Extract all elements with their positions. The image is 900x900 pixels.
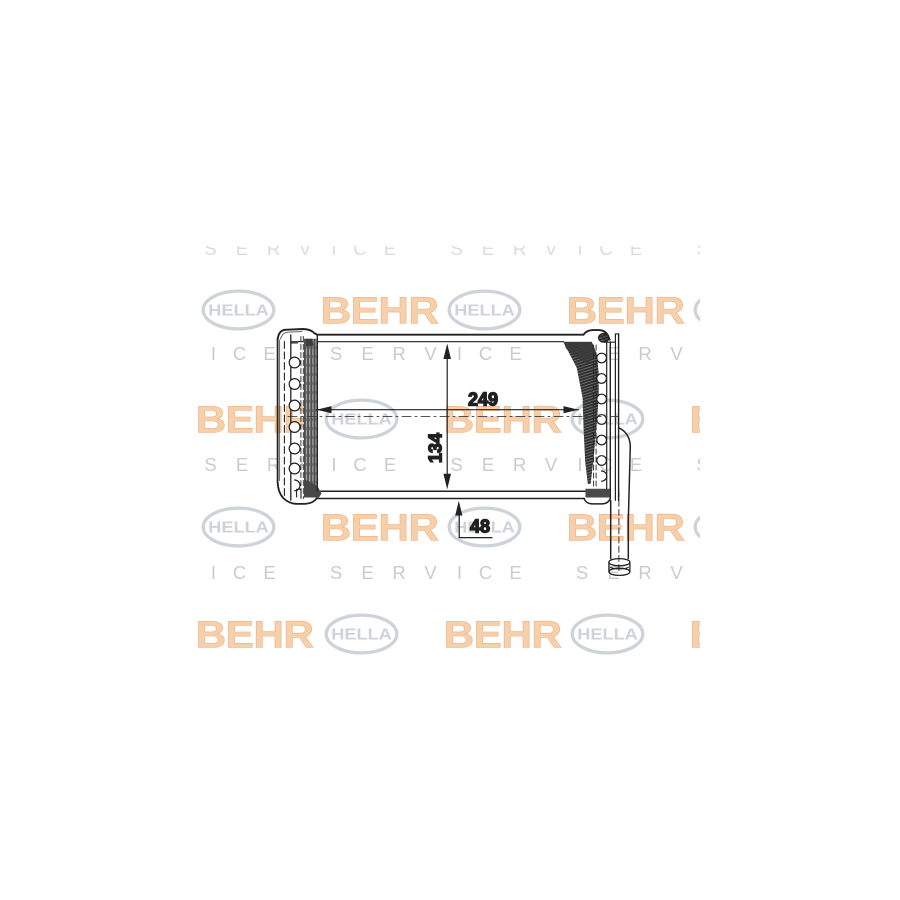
svg-text:I: I xyxy=(211,343,216,364)
svg-text:S: S xyxy=(450,454,462,475)
svg-text:E: E xyxy=(361,562,373,583)
svg-text:R: R xyxy=(513,454,526,475)
svg-text:R: R xyxy=(638,343,651,364)
svg-text:S: S xyxy=(576,562,588,583)
svg-text:R: R xyxy=(392,343,405,364)
svg-text:E: E xyxy=(509,562,521,583)
svg-text:R: R xyxy=(392,562,405,583)
svg-text:C: C xyxy=(479,562,492,583)
svg-text:I: I xyxy=(577,454,582,475)
svg-text:C: C xyxy=(479,343,492,364)
svg-text:V: V xyxy=(670,562,683,583)
svg-text:R: R xyxy=(638,562,651,583)
svg-text:I: I xyxy=(211,562,216,583)
svg-text:134: 134 xyxy=(426,433,446,463)
svg-text:S: S xyxy=(330,562,342,583)
svg-text:C: C xyxy=(233,343,246,364)
svg-text:C: C xyxy=(353,454,366,475)
svg-text:I: I xyxy=(331,454,336,475)
svg-text:E: E xyxy=(361,343,373,364)
svg-text:E: E xyxy=(509,343,521,364)
svg-text:E: E xyxy=(630,454,642,475)
svg-text:V: V xyxy=(545,454,558,475)
svg-text:E: E xyxy=(482,454,494,475)
svg-text:E: E xyxy=(384,454,396,475)
svg-text:C: C xyxy=(233,562,246,583)
svg-text:E: E xyxy=(236,454,248,475)
svg-text:E: E xyxy=(263,562,275,583)
svg-text:E: E xyxy=(263,343,275,364)
svg-text:V: V xyxy=(424,562,437,583)
svg-text:E: E xyxy=(607,343,619,364)
svg-text:V: V xyxy=(424,343,437,364)
svg-text:V: V xyxy=(670,343,683,364)
svg-text:48: 48 xyxy=(470,517,490,537)
svg-text:S: S xyxy=(204,454,216,475)
svg-text:249: 249 xyxy=(468,390,498,410)
svg-text:S: S xyxy=(330,343,342,364)
svg-text:I: I xyxy=(457,562,462,583)
svg-text:I: I xyxy=(457,343,462,364)
